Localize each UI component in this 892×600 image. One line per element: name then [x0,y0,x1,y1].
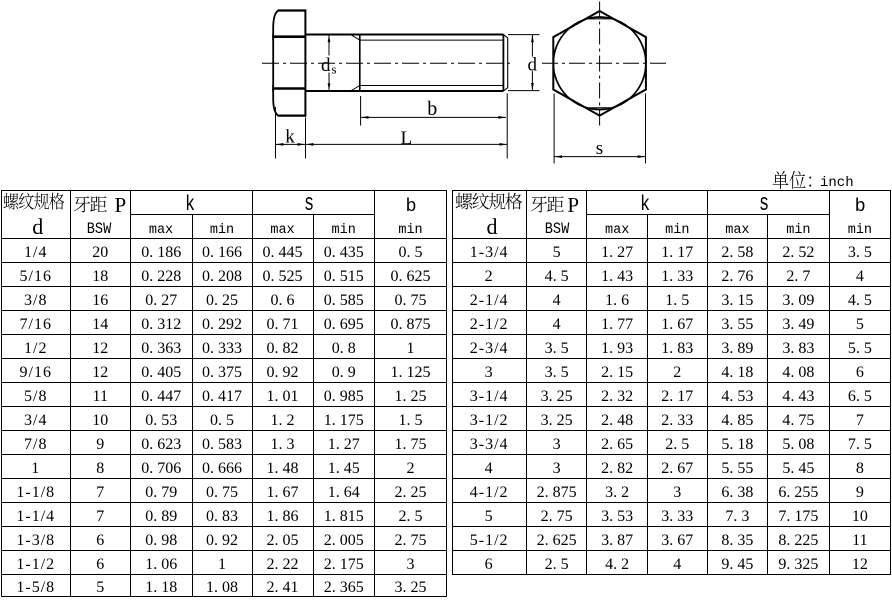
svg-text:d: d [528,54,538,75]
svg-text:L: L [401,128,413,149]
svg-text:s: s [596,138,603,159]
svg-text:s: s [332,62,337,77]
svg-text:k: k [285,127,295,148]
svg-text:d: d [321,55,331,76]
svg-text:b: b [427,98,437,120]
